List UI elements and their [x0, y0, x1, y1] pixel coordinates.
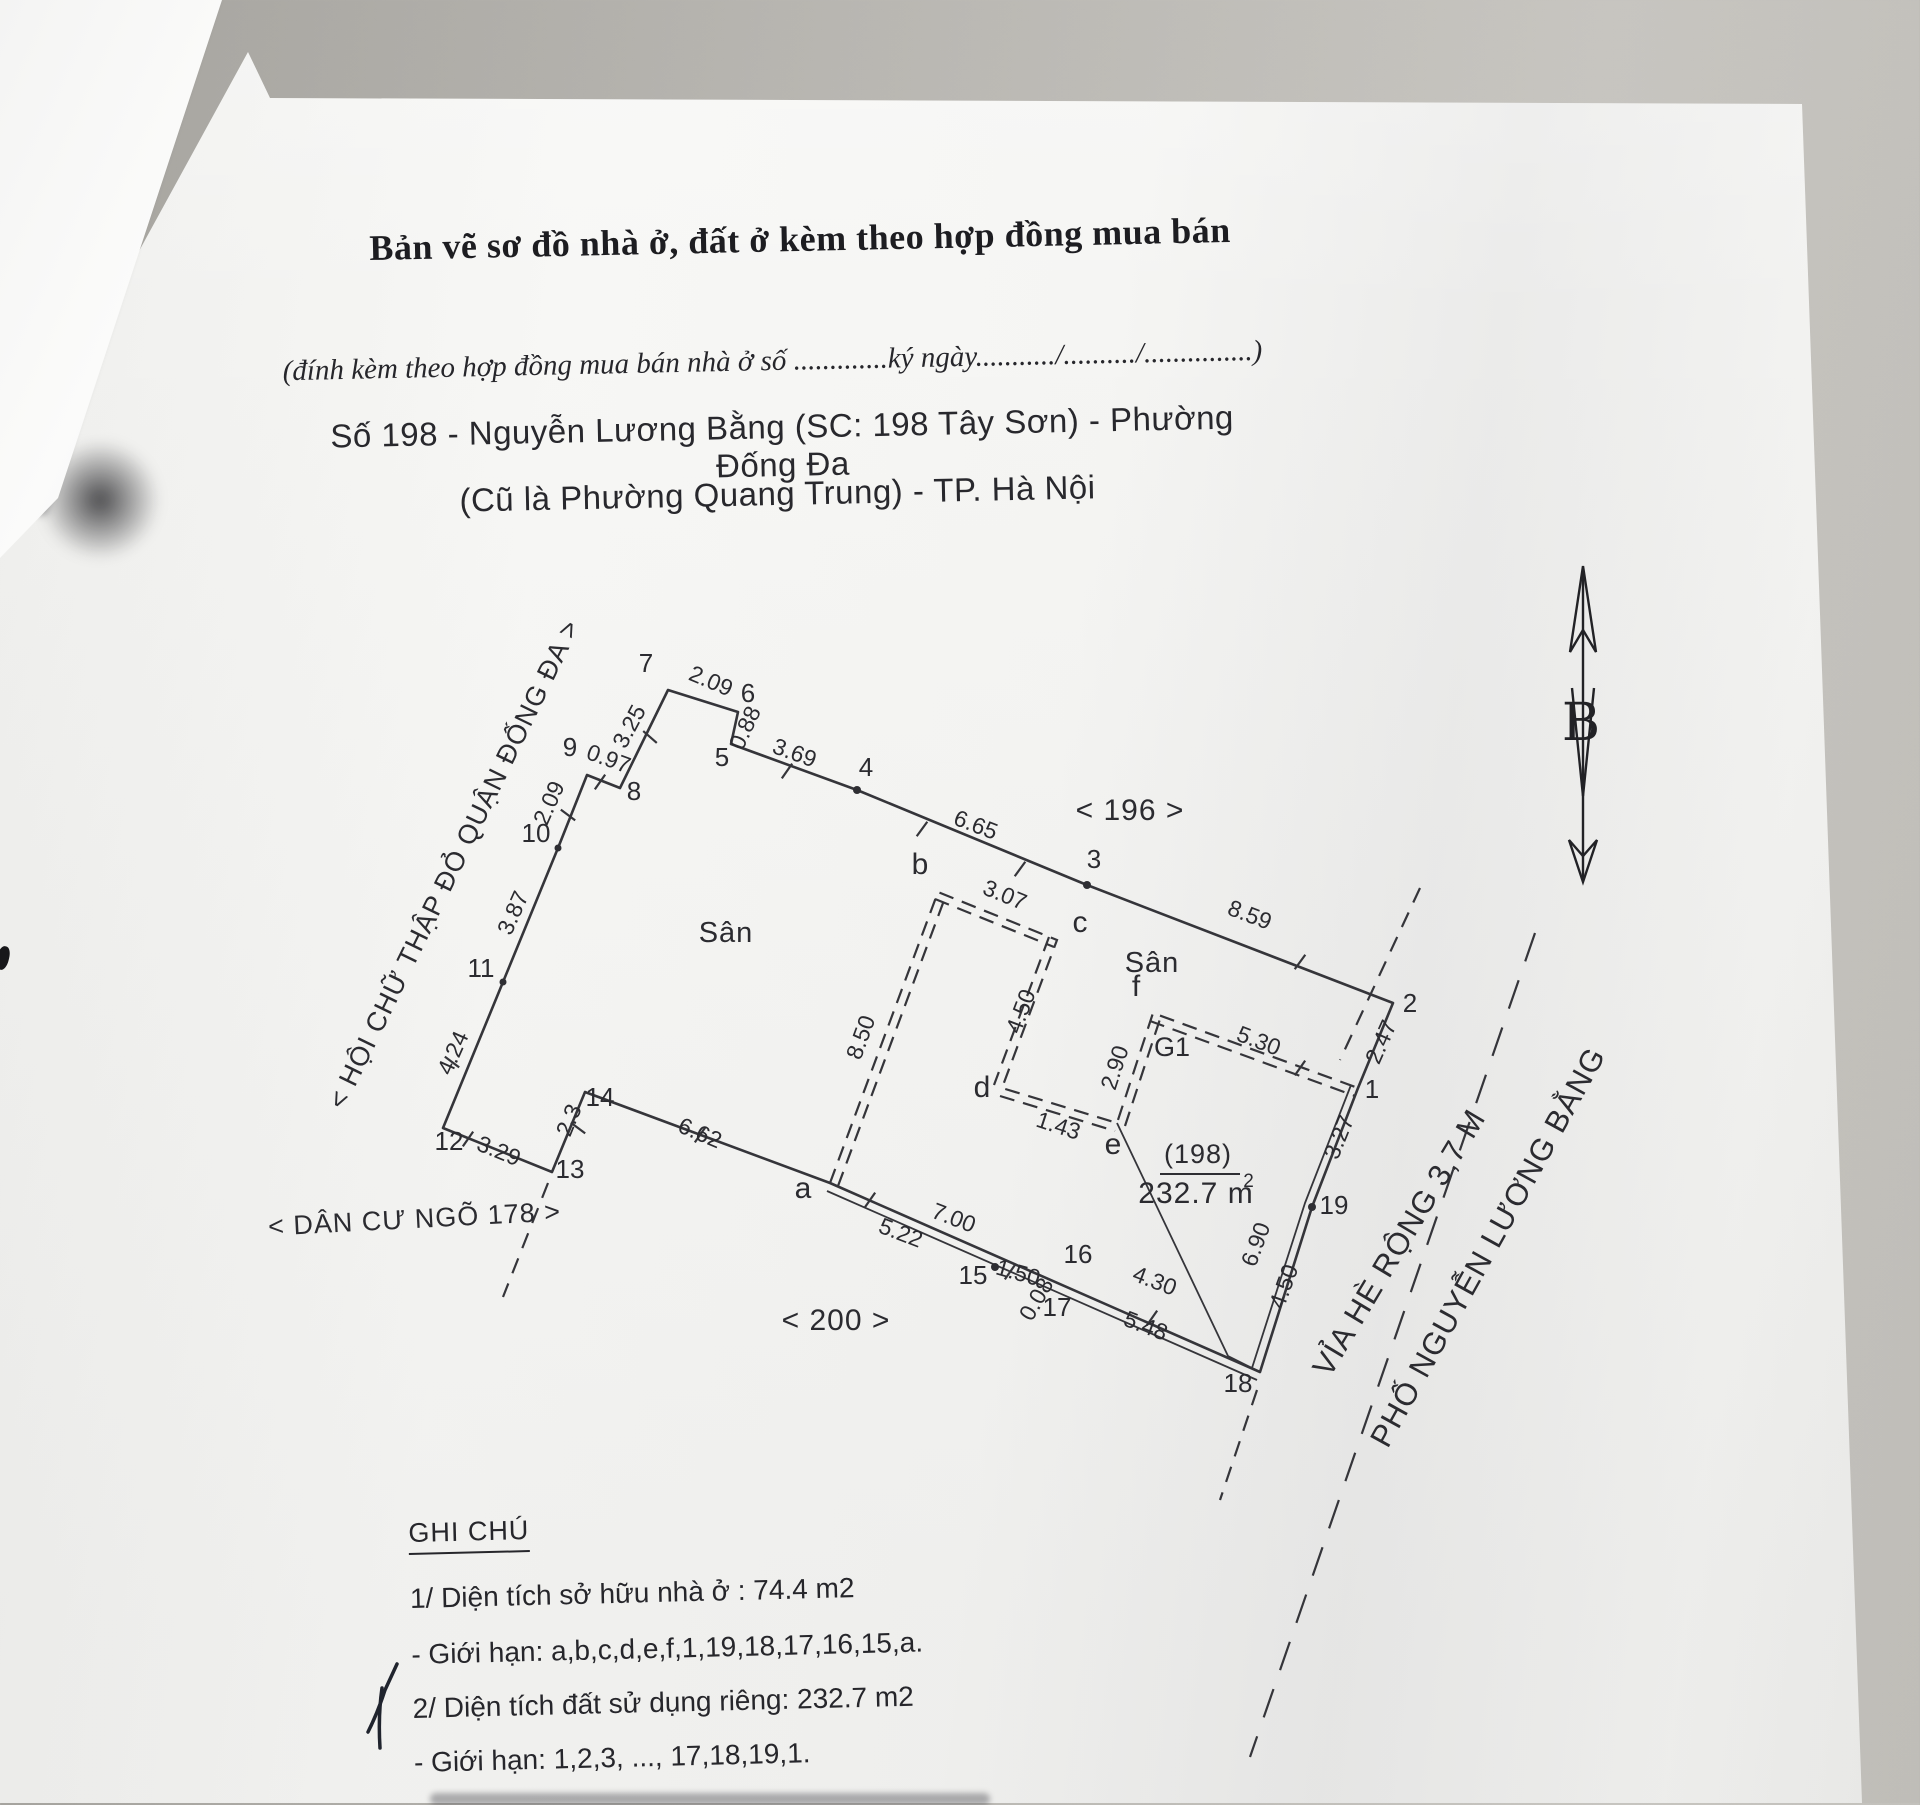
notes-block: GHI CHÚ 1/ Diện tích sở hữu nhà ở : 74.4… — [408, 1498, 1214, 1778]
vertex-label: 8 — [627, 776, 641, 806]
handwritten-checkmark — [368, 1664, 397, 1748]
note-item: 2/ Diện tích đất sử dụng riêng: 232.7 m2 — [412, 1673, 1213, 1725]
dimension-label: 8.59 — [1224, 894, 1275, 934]
vertex-label: 4 — [859, 752, 873, 782]
dimension-label: 7.00 — [928, 1197, 979, 1237]
plan-label: Sân — [699, 917, 754, 949]
vertex-label: 15 — [959, 1260, 988, 1290]
notes-heading: GHI CHÚ — [408, 1515, 530, 1555]
vertex-label: c — [1073, 906, 1088, 939]
note-item: 1/ Diện tích sở hữu nhà ở : 74.4 m2 — [410, 1563, 1211, 1615]
vertex-label: G1 — [1154, 1032, 1190, 1062]
dimension-label: 8.50 — [841, 1012, 881, 1063]
vertex-label: 12 — [435, 1126, 464, 1156]
vertex-label: 9 — [563, 732, 577, 762]
vertex-label: 7 — [639, 648, 653, 678]
plan-label: < DÂN CƯ NGÕ 178 > — [267, 1195, 561, 1241]
plan-label: 2 — [1243, 1171, 1255, 1192]
dimension-label: 2.09 — [685, 660, 736, 701]
dimension-label: 3.25 — [607, 700, 651, 752]
plan-label: (198) — [1164, 1139, 1232, 1169]
vertex-label: 19 — [1320, 1190, 1349, 1220]
plan-text-labels: SânSân< 196 >< 200 >< DÂN CƯ NGÕ 178 >< … — [267, 614, 1612, 1453]
vertex-label: 16 — [1064, 1239, 1093, 1269]
note-item: - Giới hạn: a,b,c,d,e,f,1,19,18,17,16,15… — [411, 1619, 1212, 1671]
vertex-label: 18 — [1224, 1368, 1253, 1398]
vertex-label: 6 — [741, 678, 755, 708]
dimension-label: 4.30 — [1129, 1260, 1180, 1300]
vertex-label: 13 — [556, 1154, 585, 1184]
scanned-document: { "header": { "title": "Bản vẽ sơ đồ nhà… — [0, 0, 1920, 1803]
dimension-labels: 2.090.883.250.972.093.874.243.292.36.623… — [432, 660, 1402, 1346]
dimension-label: 4.50 — [1264, 1261, 1304, 1312]
street-edge-dashed-line — [1250, 933, 1535, 1757]
vertex-label: 17 — [1043, 1292, 1072, 1322]
vertex-label: 10 — [522, 818, 551, 848]
vertex-label: 2 — [1403, 988, 1417, 1018]
dimension-label: 2.47 — [1360, 1016, 1402, 1067]
dimension-label: 6.90 — [1236, 1219, 1276, 1270]
dimension-label: 6.62 — [674, 1112, 725, 1153]
dimension-label: 5.48 — [1120, 1305, 1171, 1345]
plan-label: 232.7 m — [1138, 1177, 1253, 1210]
vertex-label: d — [974, 1071, 991, 1104]
vertex-label: b — [912, 848, 929, 881]
dimension-label: 3.29 — [473, 1130, 524, 1171]
dimension-label: 1.43 — [1033, 1106, 1084, 1145]
dimension-label: 2.3 — [551, 1100, 587, 1139]
vertex-label: 3 — [1087, 844, 1101, 874]
dimension-label: 2.90 — [1095, 1042, 1134, 1093]
north-label: B — [1562, 693, 1600, 753]
plan-label: < 196 > — [1076, 794, 1185, 827]
plan-label: < 200 > — [782, 1304, 891, 1337]
vertex-label: 11 — [468, 953, 495, 983]
dimension-label: 4.50 — [1000, 986, 1040, 1037]
dimension-label: 5.22 — [875, 1212, 926, 1252]
dimension-label: 3.07 — [979, 874, 1030, 915]
vertex-label: e — [1105, 1128, 1122, 1161]
dimension-label: 3.87 — [492, 887, 534, 938]
vertex-label: a — [795, 1172, 812, 1205]
vertex-label: 5 — [715, 742, 729, 772]
plan-label: Sân — [1125, 947, 1180, 979]
vertex-label: 14 — [586, 1082, 615, 1112]
dimension-label: 3.27 — [1318, 1111, 1359, 1162]
vertex-label: 1 — [1365, 1074, 1379, 1104]
